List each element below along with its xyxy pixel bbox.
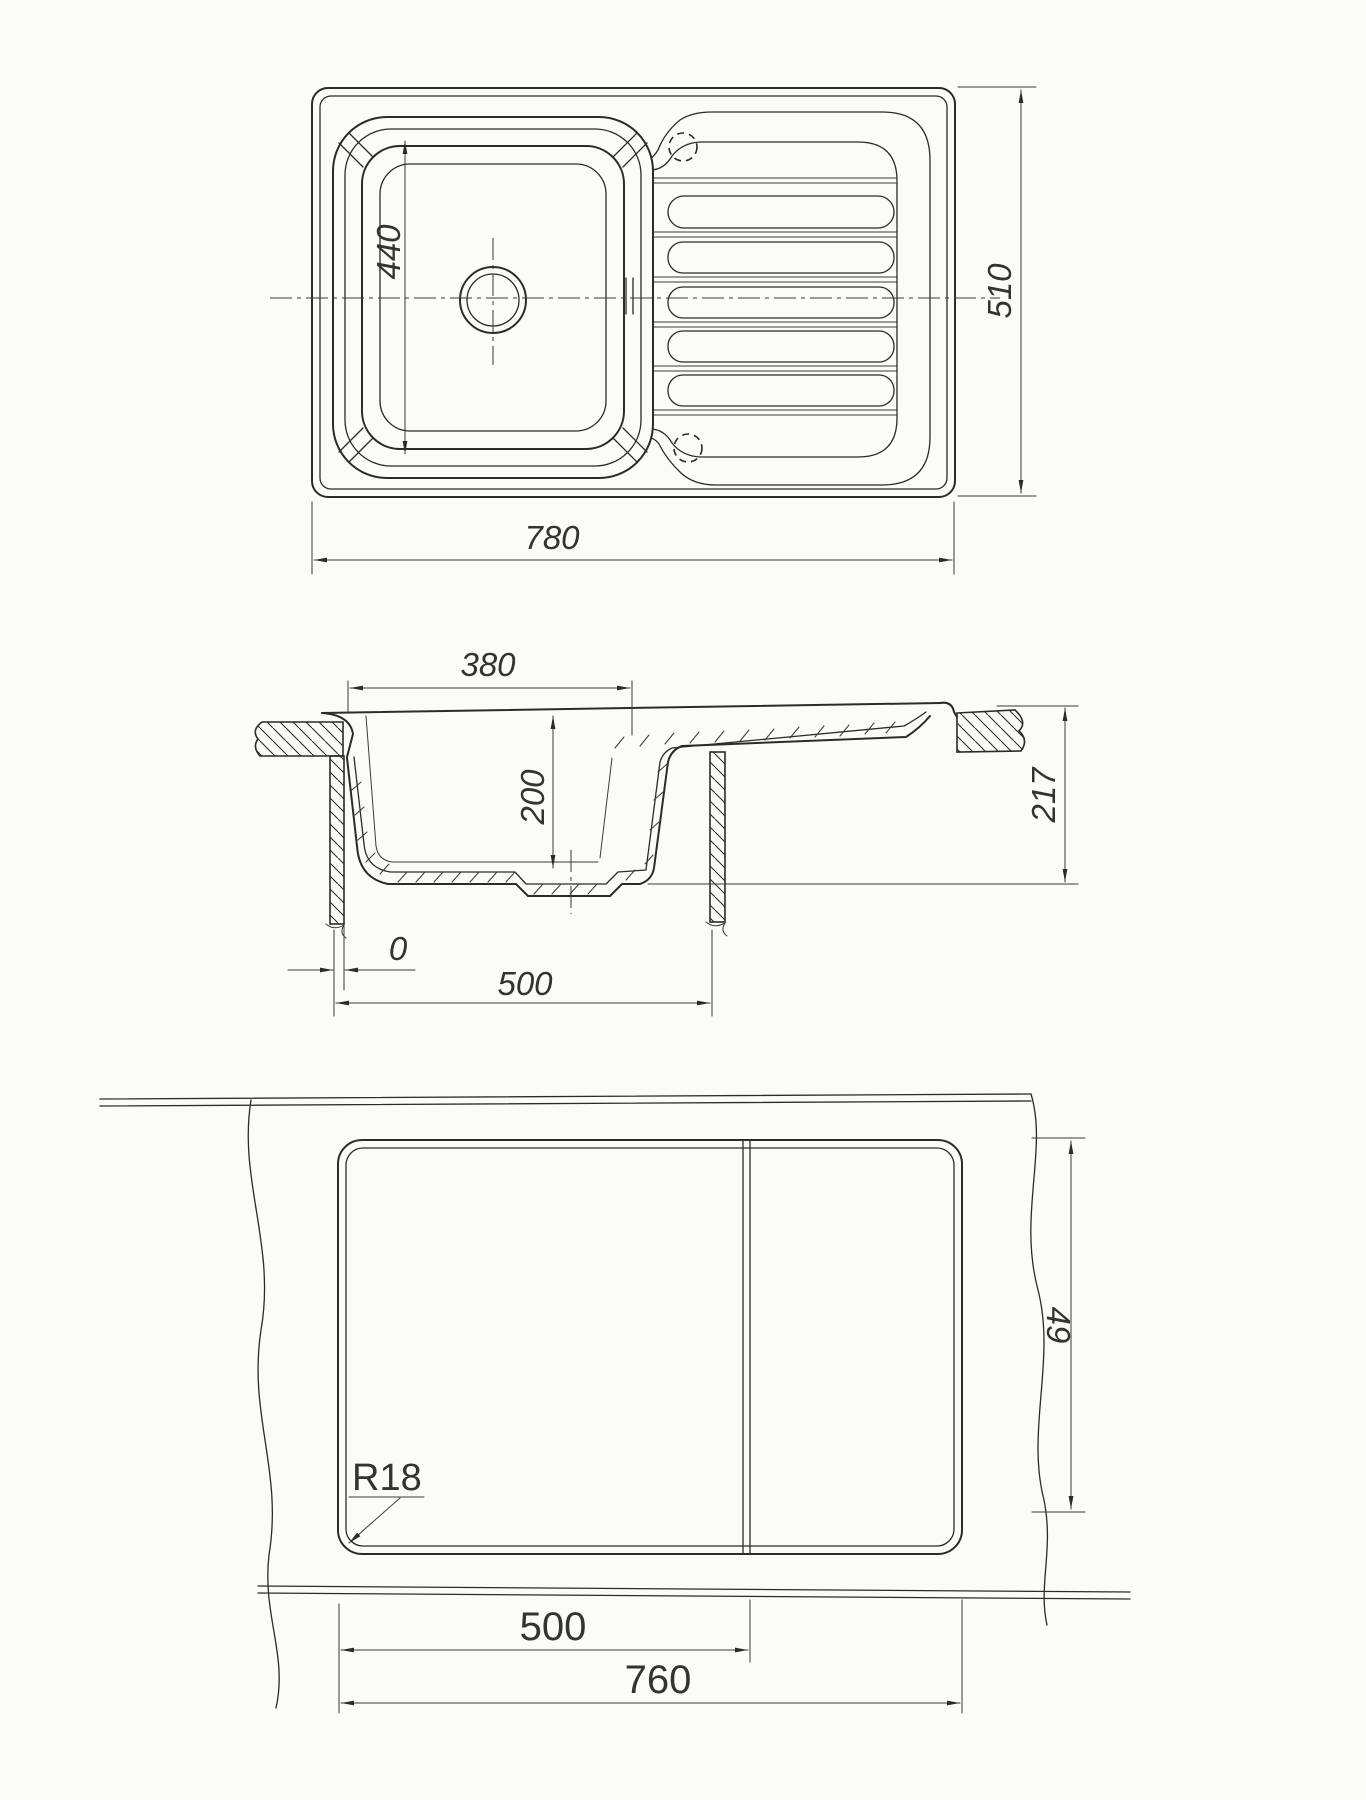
cutout-view: R18 49 500 760 (100, 1094, 1130, 1713)
cutout-divider (743, 1141, 750, 1553)
drainboard-grooves (652, 178, 897, 415)
rim-lip-right (940, 703, 957, 717)
dim-380: 380 (348, 646, 632, 735)
break-right-panel (706, 922, 727, 936)
drawing-sheet: 440 510 780 (0, 0, 1366, 1800)
bowl-wall-inner (354, 712, 926, 884)
drainboard-rib (668, 242, 894, 273)
callout-r18: R18 (349, 1457, 424, 1543)
cabinet-panel-left (330, 756, 344, 924)
dim-label-510: 510 (981, 263, 1018, 319)
dim-200: 200 (514, 716, 553, 868)
break-left-panel (326, 924, 346, 938)
break-line-left (248, 1100, 279, 1708)
dim-label-49: 49 (1040, 1307, 1077, 1344)
bowl-wall-outer (347, 716, 930, 896)
dim-label-r18: R18 (352, 1457, 422, 1499)
dim-780: 780 (312, 502, 954, 574)
dim-label-380: 380 (460, 646, 516, 683)
break-line-right (1031, 1094, 1048, 1625)
dim-49: 49 (1032, 1138, 1085, 1512)
drainboard-rib (668, 375, 894, 406)
dim-510: 510 (958, 87, 1036, 496)
section-hatch-ticks (352, 722, 895, 894)
cutout-inner-line (346, 1148, 954, 1546)
drainboard-rib (668, 331, 894, 362)
drainboard-rib (668, 287, 894, 318)
dim-label-760: 760 (625, 1658, 692, 1702)
countertop-front-edge (258, 1586, 1130, 1599)
countertop-back-edge (100, 1094, 1031, 1106)
countertop-right-section (957, 710, 1025, 752)
cabinet-panel-right (710, 752, 725, 922)
top-view: 440 510 780 (270, 87, 1036, 574)
sink-technical-drawing: 440 510 780 (0, 0, 1366, 1800)
dim-label-500-cutout: 500 (520, 1605, 587, 1649)
dim-label-217: 217 (1025, 766, 1062, 824)
dim-760: 760 (341, 1600, 962, 1713)
dim-label-200: 200 (514, 769, 551, 826)
cutout-outline (338, 1140, 962, 1554)
dim-label-780: 780 (524, 519, 580, 556)
dim-label-440: 440 (370, 224, 407, 280)
dim-label-500-section: 500 (497, 965, 553, 1002)
dim-label-0: 0 (389, 930, 408, 967)
faucet-hole-bottom (674, 434, 702, 462)
section-view: 380 200 0 500 217 (255, 646, 1078, 1016)
sink-section-profile (322, 703, 957, 914)
drainboard-rib (668, 196, 894, 228)
bowl-interior-lines (366, 716, 612, 862)
rim-front-edge (322, 703, 940, 713)
countertop-left-section (255, 722, 343, 756)
